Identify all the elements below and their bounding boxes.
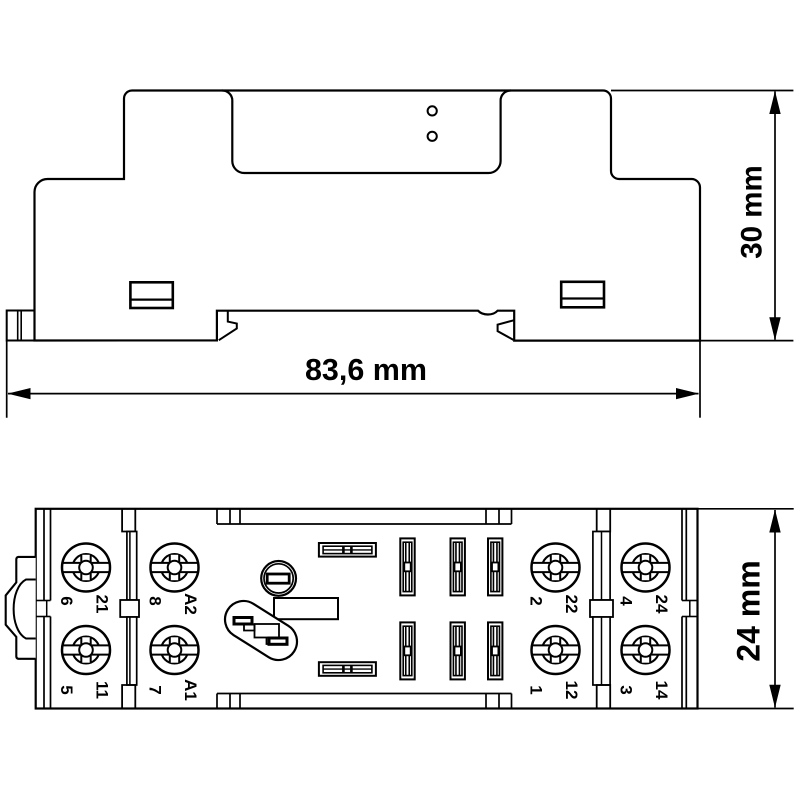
svg-text:11: 11 [93, 681, 112, 699]
svg-text:A2: A2 [181, 593, 200, 615]
svg-text:8: 8 [146, 596, 165, 605]
svg-text:12: 12 [562, 681, 581, 700]
svg-text:6: 6 [57, 596, 76, 605]
svg-text:4: 4 [617, 596, 636, 606]
svg-text:2: 2 [527, 596, 546, 605]
svg-text:83,6 mm: 83,6 mm [305, 353, 427, 387]
svg-text:3: 3 [617, 685, 636, 694]
svg-text:A1: A1 [181, 679, 200, 701]
svg-text:7: 7 [146, 685, 165, 694]
svg-text:22: 22 [562, 595, 581, 614]
svg-text:24 mm: 24 mm [731, 560, 767, 661]
svg-text:24: 24 [652, 595, 671, 614]
svg-text:21: 21 [93, 595, 112, 614]
svg-text:1: 1 [527, 685, 546, 694]
svg-text:5: 5 [57, 685, 76, 694]
svg-text:14: 14 [652, 681, 671, 700]
svg-text:30 mm: 30 mm [736, 165, 769, 258]
